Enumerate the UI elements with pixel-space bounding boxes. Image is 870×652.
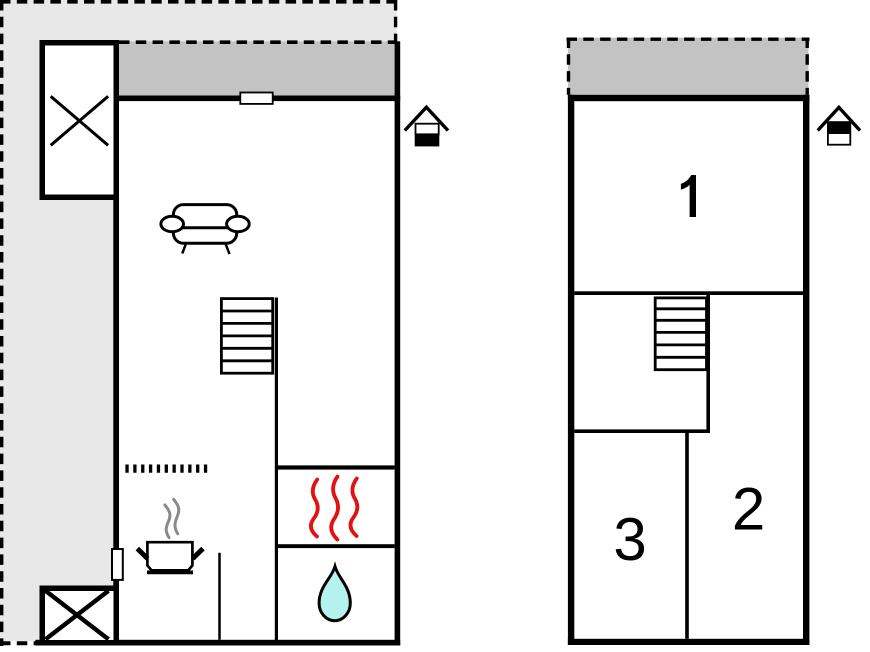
svg-text:3: 3 bbox=[613, 506, 646, 573]
svg-text:2: 2 bbox=[732, 475, 765, 542]
